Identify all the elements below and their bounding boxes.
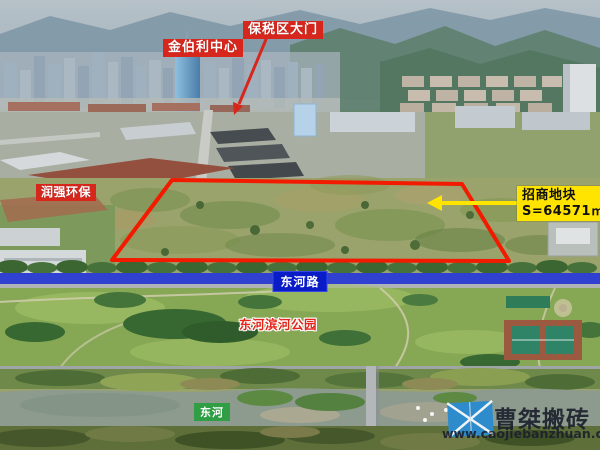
aerial-photo: 金伯利中心 保税区大门 润强环保 招商地块 S=64571㎡ 东河路 东河滨河公… xyxy=(0,0,600,450)
aerial-scene xyxy=(0,0,600,450)
label-jinboli-center: 金伯利中心 xyxy=(163,39,243,57)
road-name-label: 东河路 xyxy=(272,271,327,292)
park-name-label: 东河滨河公园 xyxy=(239,314,317,333)
river-name-label: 东河 xyxy=(194,403,230,421)
watermark-url: www.caojiebanzhuan.com xyxy=(442,426,600,441)
label-runqiang-huanbao: 润强环保 xyxy=(36,184,96,201)
plot-title: 招商地块 xyxy=(522,188,600,204)
plot-area-value: S=64571㎡ xyxy=(522,204,600,220)
label-baoshui-gate: 保税区大门 xyxy=(243,21,323,39)
right-facility xyxy=(548,222,598,256)
tennis-courts xyxy=(506,296,550,308)
bridge xyxy=(366,366,376,432)
plot-info-box: 招商地块 S=64571㎡ xyxy=(517,186,600,221)
